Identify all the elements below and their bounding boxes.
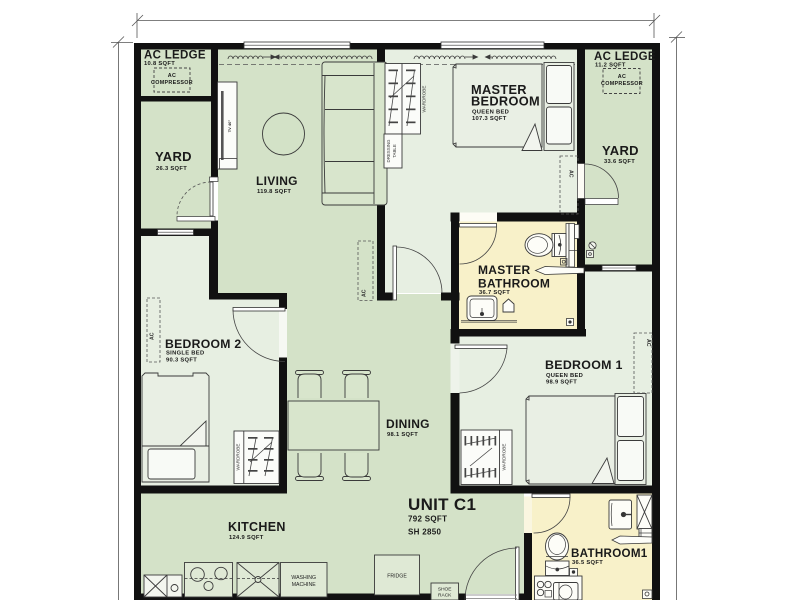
svg-text:YARD: YARD [155, 149, 192, 164]
svg-text:BATHROOM: BATHROOM [478, 277, 550, 291]
svg-text:AC LEDGE: AC LEDGE [594, 51, 656, 63]
svg-text:UNIT C1: UNIT C1 [408, 495, 476, 514]
svg-text:BATHROOM1: BATHROOM1 [571, 547, 648, 560]
svg-text:36.5 SQFT: 36.5 SQFT [572, 560, 603, 566]
svg-text:AC: AC [618, 74, 626, 80]
svg-text:TV 40": TV 40" [227, 120, 232, 133]
svg-text:SH 2850: SH 2850 [408, 528, 441, 537]
svg-text:98.1 SQFT: 98.1 SQFT [387, 432, 418, 438]
svg-text:LIVING: LIVING [256, 174, 298, 188]
svg-text:COMPRESSOR: COMPRESSOR [151, 80, 193, 86]
svg-text:DINING: DINING [386, 417, 430, 431]
svg-text:AC: AC [362, 289, 368, 297]
svg-text:107.3 SQFT: 107.3 SQFT [472, 116, 507, 122]
svg-text:36.7 SQFT: 36.7 SQFT [479, 290, 510, 296]
svg-text:BEDROOM 1: BEDROOM 1 [545, 358, 623, 372]
svg-text:AC: AC [168, 73, 176, 79]
svg-text:BEDROOM 2: BEDROOM 2 [165, 337, 242, 351]
svg-text:AC: AC [150, 332, 156, 340]
svg-text:MASTER: MASTER [478, 263, 530, 277]
svg-text:QUEEN BED: QUEEN BED [546, 373, 583, 379]
svg-text:SINGLE BED: SINGLE BED [166, 351, 204, 357]
svg-text:MACHINE: MACHINE [292, 582, 316, 588]
svg-text:792 SQFT: 792 SQFT [408, 515, 447, 524]
svg-text:FRIDGE: FRIDGE [387, 574, 407, 580]
svg-text:RACK: RACK [438, 593, 452, 599]
svg-text:11.2 SQFT: 11.2 SQFT [595, 63, 626, 69]
svg-text:WARDROBE: WARDROBE [422, 86, 427, 113]
svg-text:26.3 SQFT: 26.3 SQFT [156, 166, 187, 172]
svg-text:DRESSING: DRESSING [386, 139, 391, 163]
svg-text:YARD: YARD [602, 143, 639, 158]
svg-text:AC LEDGE: AC LEDGE [144, 50, 206, 62]
svg-text:WASHING: WASHING [291, 575, 316, 581]
svg-text:90.3 SQFT: 90.3 SQFT [166, 358, 197, 364]
svg-text:98.9 SQFT: 98.9 SQFT [546, 380, 577, 386]
svg-text:WARDROBE: WARDROBE [502, 444, 507, 471]
svg-text:AC: AC [645, 339, 651, 347]
svg-text:10.8 SQFT: 10.8 SQFT [144, 61, 175, 67]
svg-text:COMPRESSOR: COMPRESSOR [601, 81, 643, 87]
svg-text:119.8 SQFT: 119.8 SQFT [257, 189, 291, 195]
svg-text:QUEEN BED: QUEEN BED [472, 110, 509, 116]
svg-text:33.6 SQFT: 33.6 SQFT [604, 159, 635, 165]
svg-text:KITCHEN: KITCHEN [228, 520, 286, 534]
svg-text:AC: AC [568, 170, 574, 178]
svg-text:WARDROBE: WARDROBE [236, 444, 241, 471]
svg-text:BEDROOM: BEDROOM [471, 94, 540, 109]
svg-text:TABLE: TABLE [392, 144, 397, 158]
svg-text:124.9 SQFT: 124.9 SQFT [229, 535, 264, 541]
svg-text:SHOE: SHOE [438, 587, 452, 593]
